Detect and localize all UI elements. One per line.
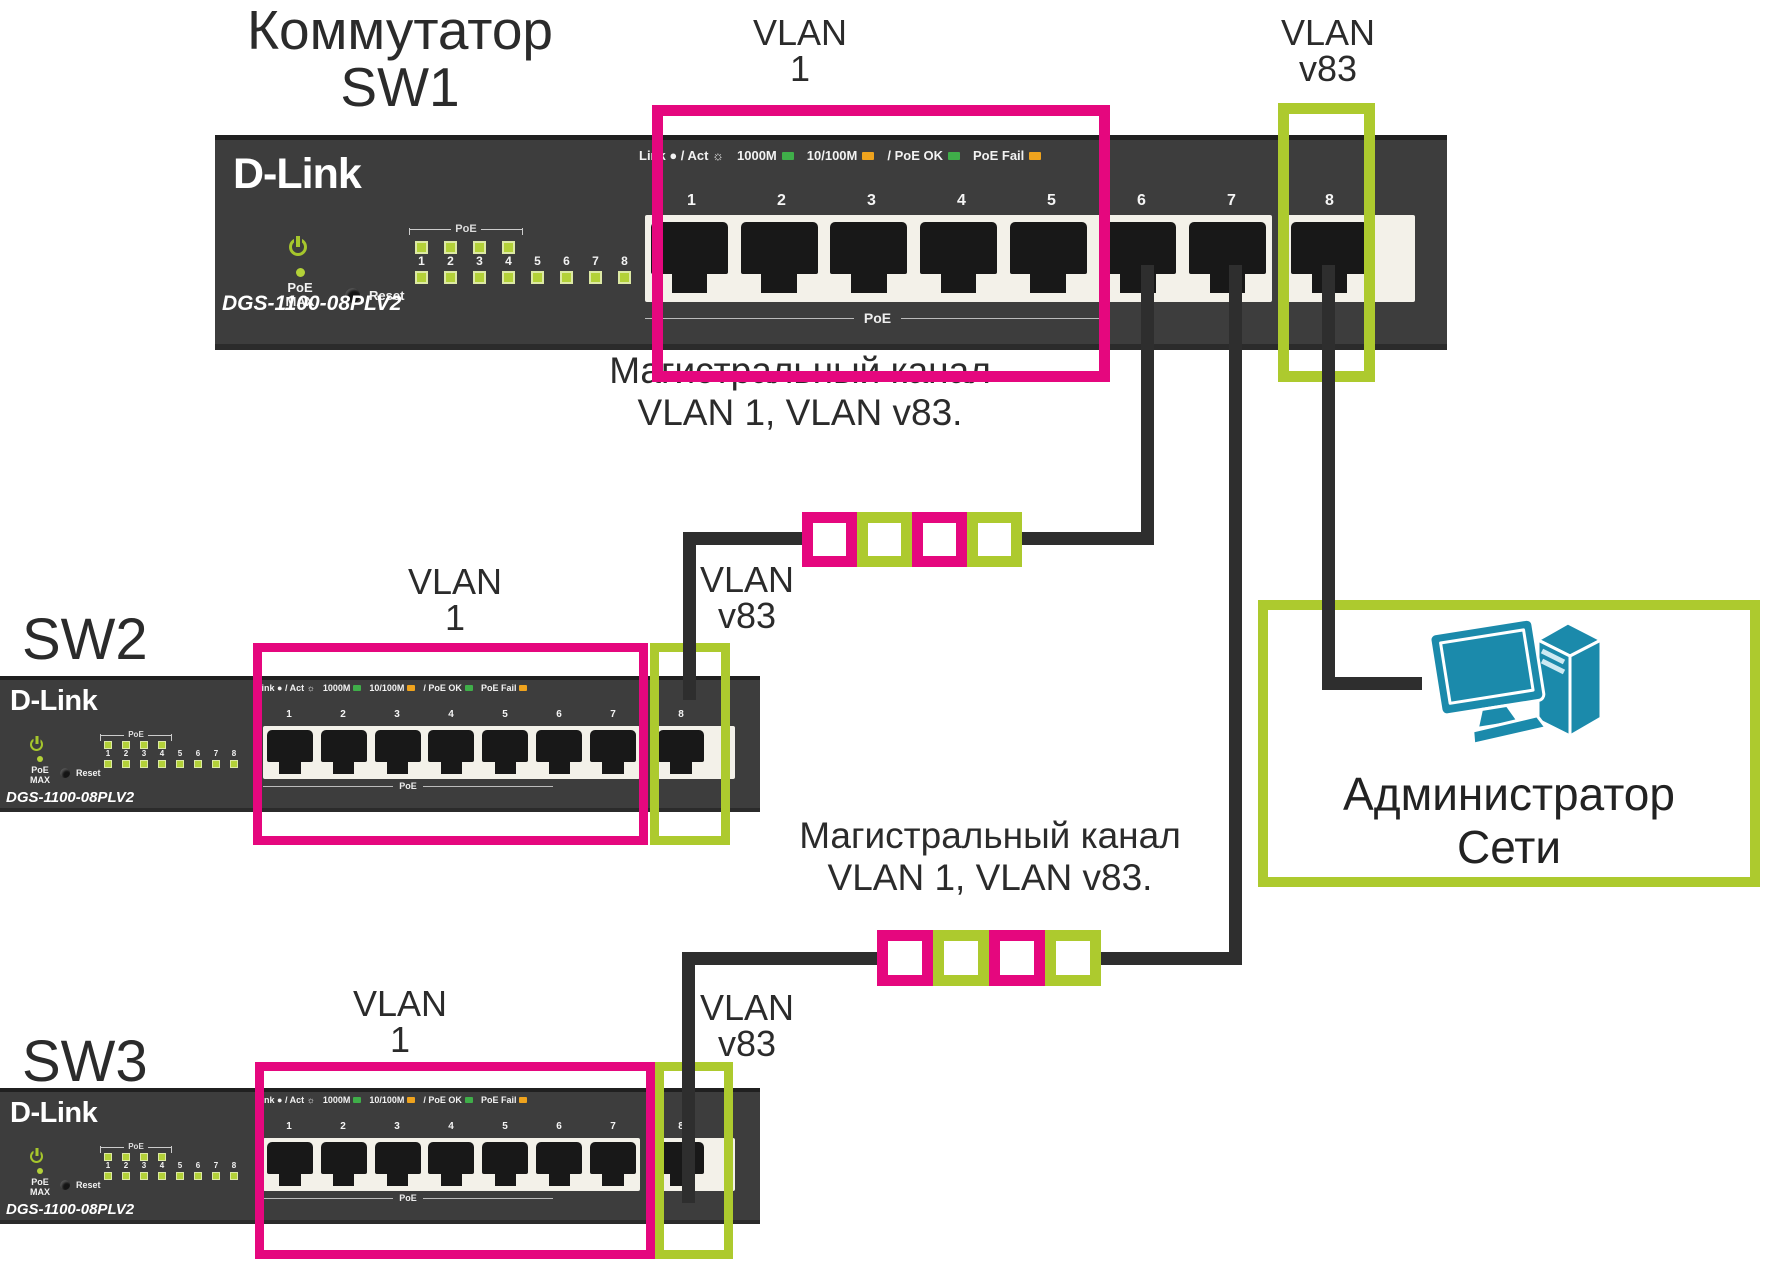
model-label: DGS-1100-08PLV2 xyxy=(6,1201,134,1218)
poe-led-icon xyxy=(158,741,166,749)
link-led-icon xyxy=(122,760,130,768)
poe-led-icon xyxy=(473,241,486,254)
link-led-icon xyxy=(560,271,573,284)
led-number: 3 xyxy=(140,1161,148,1170)
link-led-icon xyxy=(158,760,166,768)
led-number: 1 xyxy=(104,1161,112,1170)
reset-label: Reset xyxy=(76,1180,101,1190)
led-number: 8 xyxy=(230,749,238,758)
led-number: 6 xyxy=(194,1161,202,1170)
link-led-icon xyxy=(194,760,202,768)
poe-bracket-label: PoE xyxy=(124,1142,148,1152)
link-led-icon xyxy=(444,271,457,284)
poe-led-row xyxy=(104,741,166,749)
led-number: 6 xyxy=(194,749,202,758)
link-led-icon xyxy=(122,1172,130,1180)
sw3-title: SW3 xyxy=(22,1028,148,1095)
dlink-logo: D-Link xyxy=(233,150,361,199)
port-number: 6 xyxy=(1103,192,1180,210)
trunk1-cable-to-sw2-port8 xyxy=(683,532,696,700)
led-number: 3 xyxy=(140,749,148,758)
poe-led-icon xyxy=(140,741,148,749)
poe-max-label-2: MAX xyxy=(18,1187,62,1197)
sw1-title-line2: SW1 xyxy=(215,59,585,116)
power-icon xyxy=(289,238,307,256)
link-led-row xyxy=(104,1172,238,1180)
poe-bracket-label: PoE xyxy=(124,730,148,740)
poe-max-indicator: PoE MAX xyxy=(18,1168,62,1197)
computer-icon xyxy=(1428,604,1623,774)
link-led-icon xyxy=(473,271,486,284)
led-number: 7 xyxy=(589,254,602,268)
poe-led-row xyxy=(104,1153,166,1161)
poe-max-led xyxy=(37,756,43,762)
sw1-vlan1-box xyxy=(652,105,1110,382)
reset-control: Reset xyxy=(60,768,101,778)
vlan1-tag-icon xyxy=(802,512,857,567)
link-led-row xyxy=(104,760,238,768)
trunk2-cable-from-sw1-port7 xyxy=(1229,265,1242,965)
ethernet-port-jack xyxy=(1189,222,1266,274)
poe-max-led xyxy=(296,268,305,277)
poe-led-icon xyxy=(158,1153,166,1161)
sw1-vlan83-label: VLANv83 xyxy=(1248,15,1408,87)
poe-led-icon xyxy=(140,1153,148,1161)
led-number-row: 12345678 xyxy=(104,749,248,758)
network-diagram: Коммутатор SW1 SW2 SW3 VLAN1 VLANv83 VLA… xyxy=(0,0,1774,1265)
dlink-logo: D-Link xyxy=(10,685,97,718)
link-led-icon xyxy=(104,760,112,768)
link-led-icon xyxy=(212,1172,220,1180)
trunk1-vlan-tags xyxy=(802,512,1022,567)
poe-led-bracket: PoE xyxy=(100,730,172,740)
poe-bracket-label: PoE xyxy=(451,224,480,234)
led-number: 2 xyxy=(122,1161,130,1170)
link-led-icon xyxy=(415,271,428,284)
poe-led-bracket: PoE xyxy=(100,1142,172,1152)
vlan1-tag-icon xyxy=(989,930,1045,986)
vlan1-tag-icon xyxy=(912,512,967,567)
led-number: 5 xyxy=(176,1161,184,1170)
sw3-vlan1-box xyxy=(255,1062,655,1259)
vlan83-tag-icon xyxy=(857,512,912,567)
led-number: 8 xyxy=(618,254,631,268)
link-led-icon xyxy=(531,271,544,284)
poe-max-label-1: PoE xyxy=(18,1177,62,1187)
port-number: 7 xyxy=(1193,192,1270,210)
model-label: DGS-1100-08PLV2 xyxy=(222,292,401,316)
sw2-vlan1-box xyxy=(253,643,648,845)
led-number: 3 xyxy=(473,254,486,268)
power-icon xyxy=(30,738,43,751)
poe-led-bracket: PoE xyxy=(409,224,523,234)
dlink-logo: D-Link xyxy=(10,1097,97,1130)
power-icon xyxy=(30,1150,43,1163)
led-number: 7 xyxy=(212,1161,220,1170)
link-led-icon xyxy=(230,1172,238,1180)
link-led-icon xyxy=(194,1172,202,1180)
led-number: 8 xyxy=(230,1161,238,1170)
poe-led-icon xyxy=(502,241,515,254)
link-led-icon xyxy=(176,1172,184,1180)
poe-led-icon xyxy=(122,1153,130,1161)
admin-cable-horizontal xyxy=(1322,677,1422,690)
poe-led-row xyxy=(415,241,515,254)
sw1-vlan1-label: VLAN1 xyxy=(720,15,880,87)
led-number: 4 xyxy=(158,1161,166,1170)
poe-max-led xyxy=(37,1168,43,1174)
trunk1-cable-from-sw1-port6 xyxy=(1141,265,1154,545)
poe-max-indicator: PoE MAX xyxy=(18,756,62,785)
poe-led-icon xyxy=(122,741,130,749)
led-number: 5 xyxy=(531,254,544,268)
reset-control: Reset xyxy=(60,1180,101,1190)
link-led-icon xyxy=(140,760,148,768)
reset-button-icon xyxy=(60,1180,70,1190)
link-led-icon xyxy=(104,1172,112,1180)
link-led-icon xyxy=(618,271,631,284)
trunk2-label: Магистральный каналVLAN 1, VLAN v83. xyxy=(690,815,1290,899)
poe-max-label-1: PoE xyxy=(18,765,62,775)
sw3-vlan1-label: VLAN1 xyxy=(320,986,480,1058)
vlan83-tag-icon xyxy=(1045,930,1101,986)
led-number: 2 xyxy=(444,254,457,268)
vlan83-tag-icon xyxy=(933,930,989,986)
led-number: 5 xyxy=(176,749,184,758)
led-number-row: 12345678 xyxy=(104,1161,248,1170)
link-led-icon xyxy=(140,1172,148,1180)
led-number: 2 xyxy=(122,749,130,758)
sw1-title-line1: Коммутатор xyxy=(215,2,585,59)
poe-led-icon xyxy=(104,741,112,749)
link-led-icon xyxy=(589,271,602,284)
sw1-title: Коммутатор SW1 xyxy=(215,2,585,116)
link-led-icon xyxy=(502,271,515,284)
led-number: 6 xyxy=(560,254,573,268)
led-number: 4 xyxy=(502,254,515,268)
link-led-icon xyxy=(230,760,238,768)
link-led-icon xyxy=(176,760,184,768)
poe-led-icon xyxy=(444,241,457,254)
trunk2-vlan-tags xyxy=(877,930,1101,986)
poe-led-icon xyxy=(104,1153,112,1161)
led-number-row: 12345678 xyxy=(415,254,647,268)
link-led-icon xyxy=(212,760,220,768)
reset-button-icon xyxy=(60,768,70,778)
vlan83-tag-icon xyxy=(967,512,1022,567)
link-led-row xyxy=(415,271,631,284)
admin-cable-from-sw1-port8 xyxy=(1322,265,1335,690)
ethernet-port-jack xyxy=(1099,222,1176,274)
led-number: 7 xyxy=(212,749,220,758)
reset-label: Reset xyxy=(76,768,101,778)
model-label: DGS-1100-08PLV2 xyxy=(6,789,134,806)
sw2-title: SW2 xyxy=(22,606,148,673)
poe-led-icon xyxy=(415,241,428,254)
led-number: 1 xyxy=(415,254,428,268)
admin-label: Администратор Сети xyxy=(1268,768,1750,874)
led-number: 1 xyxy=(104,749,112,758)
poe-max-label-2: MAX xyxy=(18,775,62,785)
vlan1-tag-icon xyxy=(877,930,933,986)
sw2-vlan1-label: VLAN1 xyxy=(375,564,535,636)
led-number: 4 xyxy=(158,749,166,758)
trunk2-cable-to-sw3-port8 xyxy=(682,952,695,1203)
link-led-icon xyxy=(158,1172,166,1180)
